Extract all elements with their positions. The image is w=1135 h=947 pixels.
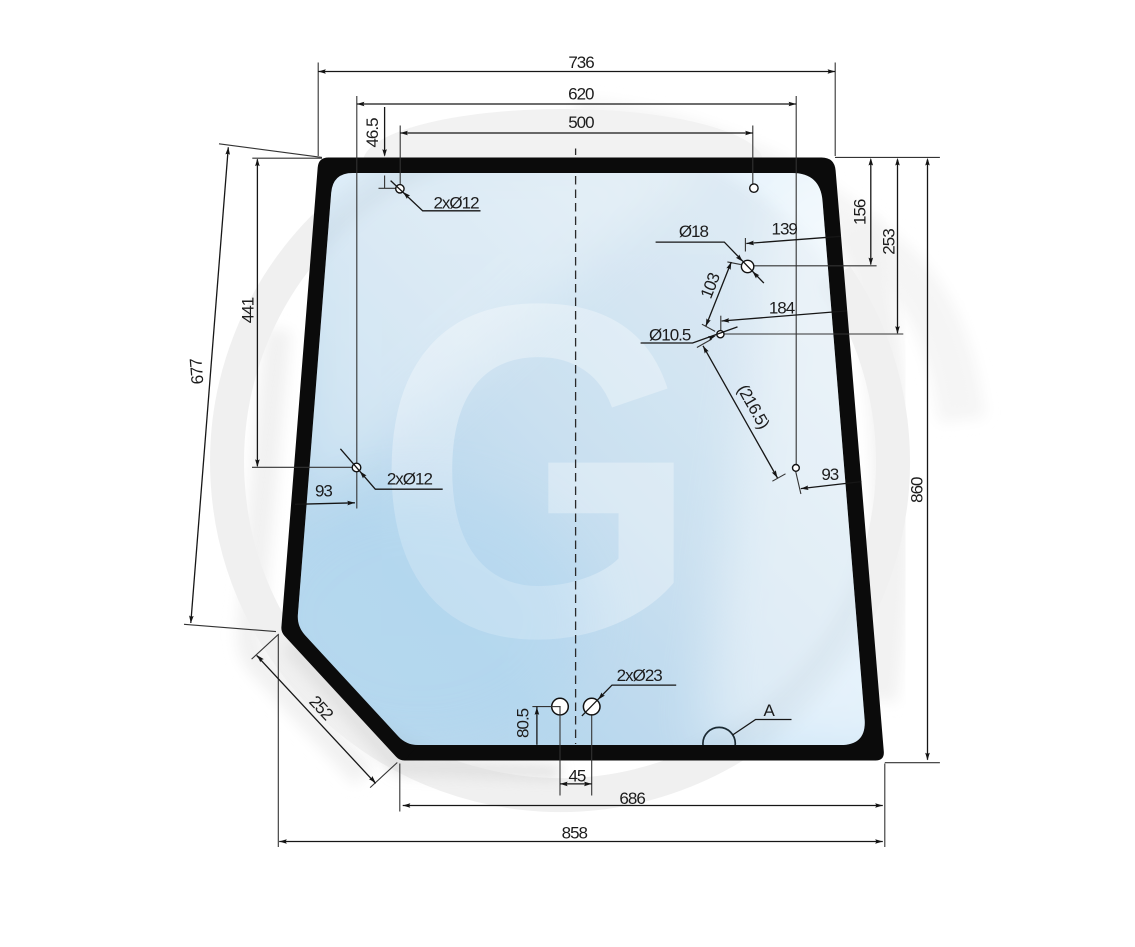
svg-text:139: 139	[772, 220, 798, 239]
svg-text:441: 441	[238, 297, 257, 323]
svg-text:858: 858	[562, 824, 588, 843]
svg-text:Ø10.5: Ø10.5	[649, 326, 691, 345]
svg-text:93: 93	[315, 481, 332, 500]
svg-text:80.5: 80.5	[514, 708, 533, 738]
svg-text:860: 860	[908, 477, 927, 503]
svg-text:686: 686	[619, 789, 645, 808]
svg-text:A: A	[764, 701, 776, 720]
svg-text:Ø18: Ø18	[679, 222, 709, 241]
svg-text:46.5: 46.5	[363, 118, 382, 148]
svg-text:184: 184	[769, 299, 795, 318]
svg-text:620: 620	[568, 85, 594, 104]
svg-text:500: 500	[568, 113, 594, 132]
svg-text:156: 156	[851, 199, 870, 225]
svg-text:93: 93	[821, 465, 838, 484]
svg-text:2xØ23: 2xØ23	[617, 666, 663, 685]
svg-text:736: 736	[568, 53, 594, 72]
svg-text:2xØ12: 2xØ12	[387, 469, 433, 488]
svg-text:677: 677	[186, 358, 207, 385]
svg-text:253: 253	[880, 229, 899, 255]
svg-text:2xØ12: 2xØ12	[433, 194, 479, 213]
svg-text:45: 45	[568, 767, 585, 786]
